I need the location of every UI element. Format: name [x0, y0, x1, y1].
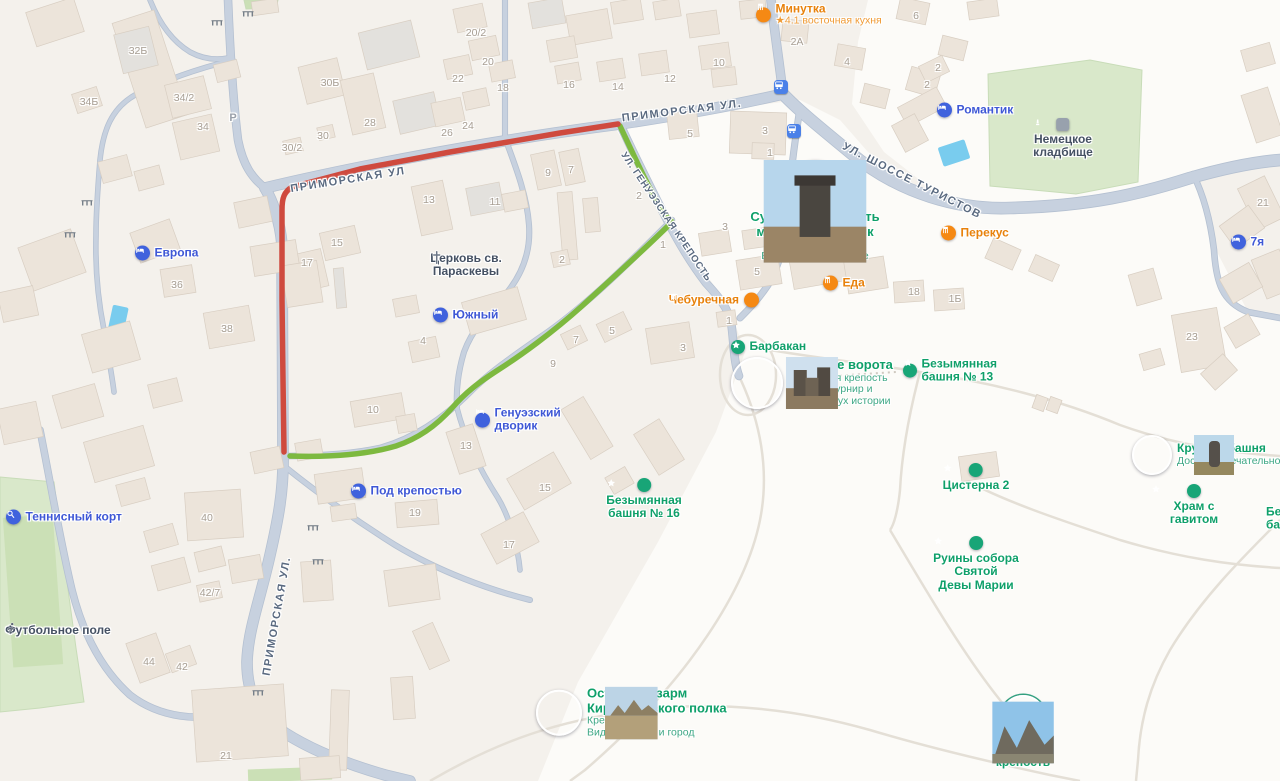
poi-церковь-св[interactable]: Церковь св. Параскевы [430, 250, 502, 279]
house-number: 36 [171, 279, 183, 291]
poi-остатки-казарм[interactable]: Остатки казарм Кирилловского полкаКрепос… [536, 687, 727, 740]
poi-под-крепостью[interactable]: Под крепостью [351, 484, 462, 499]
poi-title: Немецкое кладбище [1033, 133, 1093, 160]
house-number: 32Б [129, 45, 148, 57]
poi-минутка[interactable]: Минутка★4.1 восточная кухня [756, 2, 882, 27]
poi-перекус[interactable]: Перекус [941, 226, 1009, 241]
poi-немецкое[interactable]: Немецкое кладбище [1033, 118, 1093, 160]
poi-главные-ворота[interactable]: Главные воротаГенуэзская крепостьУвидеть… [731, 357, 893, 409]
bus-stop-icon[interactable] [787, 124, 801, 138]
hotel-icon [135, 246, 150, 261]
house-number: 6 [913, 10, 919, 22]
house-number: 28 [364, 117, 376, 129]
poi-барбакан[interactable]: Барбакан [731, 340, 807, 354]
poi-title: Цистерна 2 [943, 479, 1010, 492]
house-number: 21 [220, 750, 232, 762]
gate-icon [211, 20, 223, 26]
poi-title: Под крепостью [371, 484, 462, 497]
house-number: 21 [1257, 197, 1269, 209]
poi-храм-с-гавитом[interactable]: Храм с гавитом [1151, 484, 1237, 527]
poi-title: Перекус [961, 226, 1009, 239]
house-number: 11 [490, 196, 501, 208]
house-number: 1 [767, 147, 773, 159]
poi-еда[interactable]: Еда [823, 276, 865, 291]
house-number: 2 [935, 62, 941, 74]
hotel-icon [433, 308, 448, 323]
house-number: 30/2 [282, 142, 302, 154]
street-label: ПРИМОРСКАЯ УЛ. [261, 555, 294, 676]
house-number: 1 [726, 315, 732, 327]
house-number: 9 [545, 167, 551, 179]
house-number: 30Б [321, 77, 340, 89]
photo-thumbnail-icon [791, 160, 839, 208]
house-number: 34 [197, 121, 209, 133]
poi-subtitle: ★4.1 восточная кухня [776, 16, 882, 28]
parking-marker: Р [229, 112, 236, 124]
hotel-icon [937, 103, 952, 118]
street-label: УЛ. ГЕНУЭЗСКАЯ КРЕПОСТЬ [619, 150, 714, 283]
house-number: 44 [143, 656, 155, 668]
poi-title: Безымянная башня № 16 [606, 494, 682, 521]
house-number: 3 [680, 342, 686, 354]
house-number: 5 [754, 266, 760, 278]
poi-безымянная[interactable]: Безымянная башня № 13 [903, 358, 998, 385]
gate-icon [81, 200, 93, 206]
house-number: 15 [331, 237, 343, 249]
house-number: 19 [409, 507, 421, 519]
house-number: 34/2 [174, 92, 194, 104]
house-number: 18 [497, 82, 509, 94]
house-number: 22 [452, 73, 464, 85]
hotel-icon [1231, 235, 1246, 250]
poi-круглая-башня[interactable]: Круглая башняДостопримечательность [1132, 435, 1280, 475]
photo-thumbnail-icon [536, 690, 582, 736]
house-number: 14 [612, 81, 624, 93]
hotel-icon [475, 413, 490, 428]
house-number: 7 [568, 164, 574, 176]
poi-title: Еда [843, 276, 865, 289]
house-number: 16 [563, 79, 575, 91]
house-number: 4 [420, 335, 426, 347]
attraction-star-icon [903, 364, 917, 378]
house-number: 1Б [949, 293, 962, 305]
tennis-icon [6, 510, 21, 525]
poi-title: Романтик [957, 103, 1014, 116]
poi-европа[interactable]: Европа [135, 246, 199, 261]
poi-7я[interactable]: 7я [1231, 235, 1265, 250]
house-number: 20/2 [466, 27, 486, 39]
house-number: 5 [609, 325, 615, 337]
house-number: 5 [687, 128, 693, 140]
poi-title: Футбольное поле [5, 624, 110, 637]
poi-генуэзский[interactable]: Генуэзский дворик [475, 407, 561, 434]
house-number: 2А [791, 36, 804, 48]
attraction-star-icon [969, 463, 983, 477]
poi-title: Безымянная башня [1266, 506, 1280, 533]
house-number: 3 [762, 125, 768, 137]
poi-title: Теннисный корт [26, 510, 122, 523]
house-number: 9 [550, 358, 556, 370]
house-number: 17 [301, 257, 313, 269]
house-number: 3 [722, 221, 728, 233]
house-number: 26 [441, 127, 453, 139]
attraction-star-icon [731, 340, 745, 354]
house-number: 2 [924, 79, 930, 91]
bus-stop-icon[interactable] [774, 80, 788, 94]
map-labels-layer: ПРИМОРСКАЯ УЛПРИМОРСКАЯ УЛ.УЛ. ШОССЕ ТУР… [0, 0, 1280, 781]
poi-title: Европа [155, 246, 199, 259]
poi-романтик[interactable]: Романтик [937, 103, 1014, 118]
poi-южный[interactable]: Южный [433, 308, 499, 323]
house-number: 17 [503, 539, 515, 551]
food-icon [756, 8, 771, 23]
house-number: 18 [908, 286, 920, 298]
house-number: 20 [482, 56, 494, 68]
monument-icon [1057, 118, 1070, 131]
poi-чебуречная[interactable]: Чебуречная [669, 293, 759, 308]
food-icon [823, 276, 838, 291]
poi-title: Безымянная башня № 13 [922, 358, 998, 385]
gate-icon [312, 559, 324, 565]
attraction-star-icon [1187, 484, 1201, 498]
house-number: 34Б [80, 96, 99, 108]
poi-title: Чебуречная [669, 293, 739, 306]
gate-icon [242, 11, 254, 17]
poi-title: Генуэзский дворик [495, 407, 561, 434]
house-number: 2 [636, 190, 642, 202]
house-number: 30 [317, 130, 329, 142]
gate-icon [252, 690, 264, 696]
poi-судакская[interactable]: Судакская крепость [992, 695, 1054, 770]
photo-thumbnail-icon [731, 357, 783, 409]
house-number: 13 [460, 440, 472, 452]
house-number: 42 [176, 661, 188, 673]
attraction-star-icon [637, 478, 651, 492]
poi-футбольное-поле[interactable]: Футбольное поле [5, 622, 110, 637]
food-icon [744, 293, 759, 308]
poi-title: Руины собора Святой Девы Марии [933, 552, 1019, 592]
poi-title: Храм с гавитом [1151, 500, 1237, 527]
street-label: ПРИМОРСКАЯ УЛ [290, 165, 407, 195]
photo-thumbnail-icon [1000, 695, 1046, 741]
photo-thumbnail-icon [1132, 435, 1172, 475]
attraction-star-icon [969, 536, 983, 550]
poi-судакская-крепость[interactable]: Судакская крепость музей-заповедникГенуэ… [750, 160, 879, 263]
house-number: 2 [559, 254, 565, 266]
poi-безымянная[interactable]: Безымянная башня [1266, 506, 1280, 533]
hotel-icon [351, 484, 366, 499]
house-number: 4 [844, 56, 850, 68]
house-number: 38 [221, 323, 233, 335]
house-number: 23 [1186, 331, 1198, 343]
street-label: ПРИМОРСКАЯ УЛ. [621, 98, 743, 125]
poi-руины-собора[interactable]: Руины собора Святой Девы Марии [933, 536, 1019, 592]
poi-title: Барбакан [750, 340, 807, 353]
poi-title: 7я [1251, 235, 1265, 248]
house-number: 1 [660, 239, 666, 251]
gate-icon [307, 525, 319, 531]
poi-цистерна-2[interactable]: Цистерна 2 [943, 463, 1010, 492]
house-number: 10 [713, 57, 725, 69]
poi-безымянная[interactable]: Безымянная башня № 16 [606, 478, 682, 521]
poi-title: Южный [453, 308, 499, 321]
house-number: 42/7 [200, 587, 220, 599]
house-number: 24 [462, 120, 474, 132]
house-number: 7 [573, 334, 579, 346]
house-number: 40 [201, 512, 213, 524]
house-number: 12 [664, 73, 676, 85]
gate-icon [64, 232, 76, 238]
house-number: 13 [423, 194, 435, 206]
map-canvas[interactable]: ПРИМОРСКАЯ УЛПРИМОРСКАЯ УЛ.УЛ. ШОССЕ ТУР… [0, 0, 1280, 781]
house-number: 15 [539, 482, 551, 494]
food-icon [941, 226, 956, 241]
house-number: 10 [367, 404, 379, 416]
poi-теннисный-корт[interactable]: Теннисный корт [6, 510, 122, 525]
